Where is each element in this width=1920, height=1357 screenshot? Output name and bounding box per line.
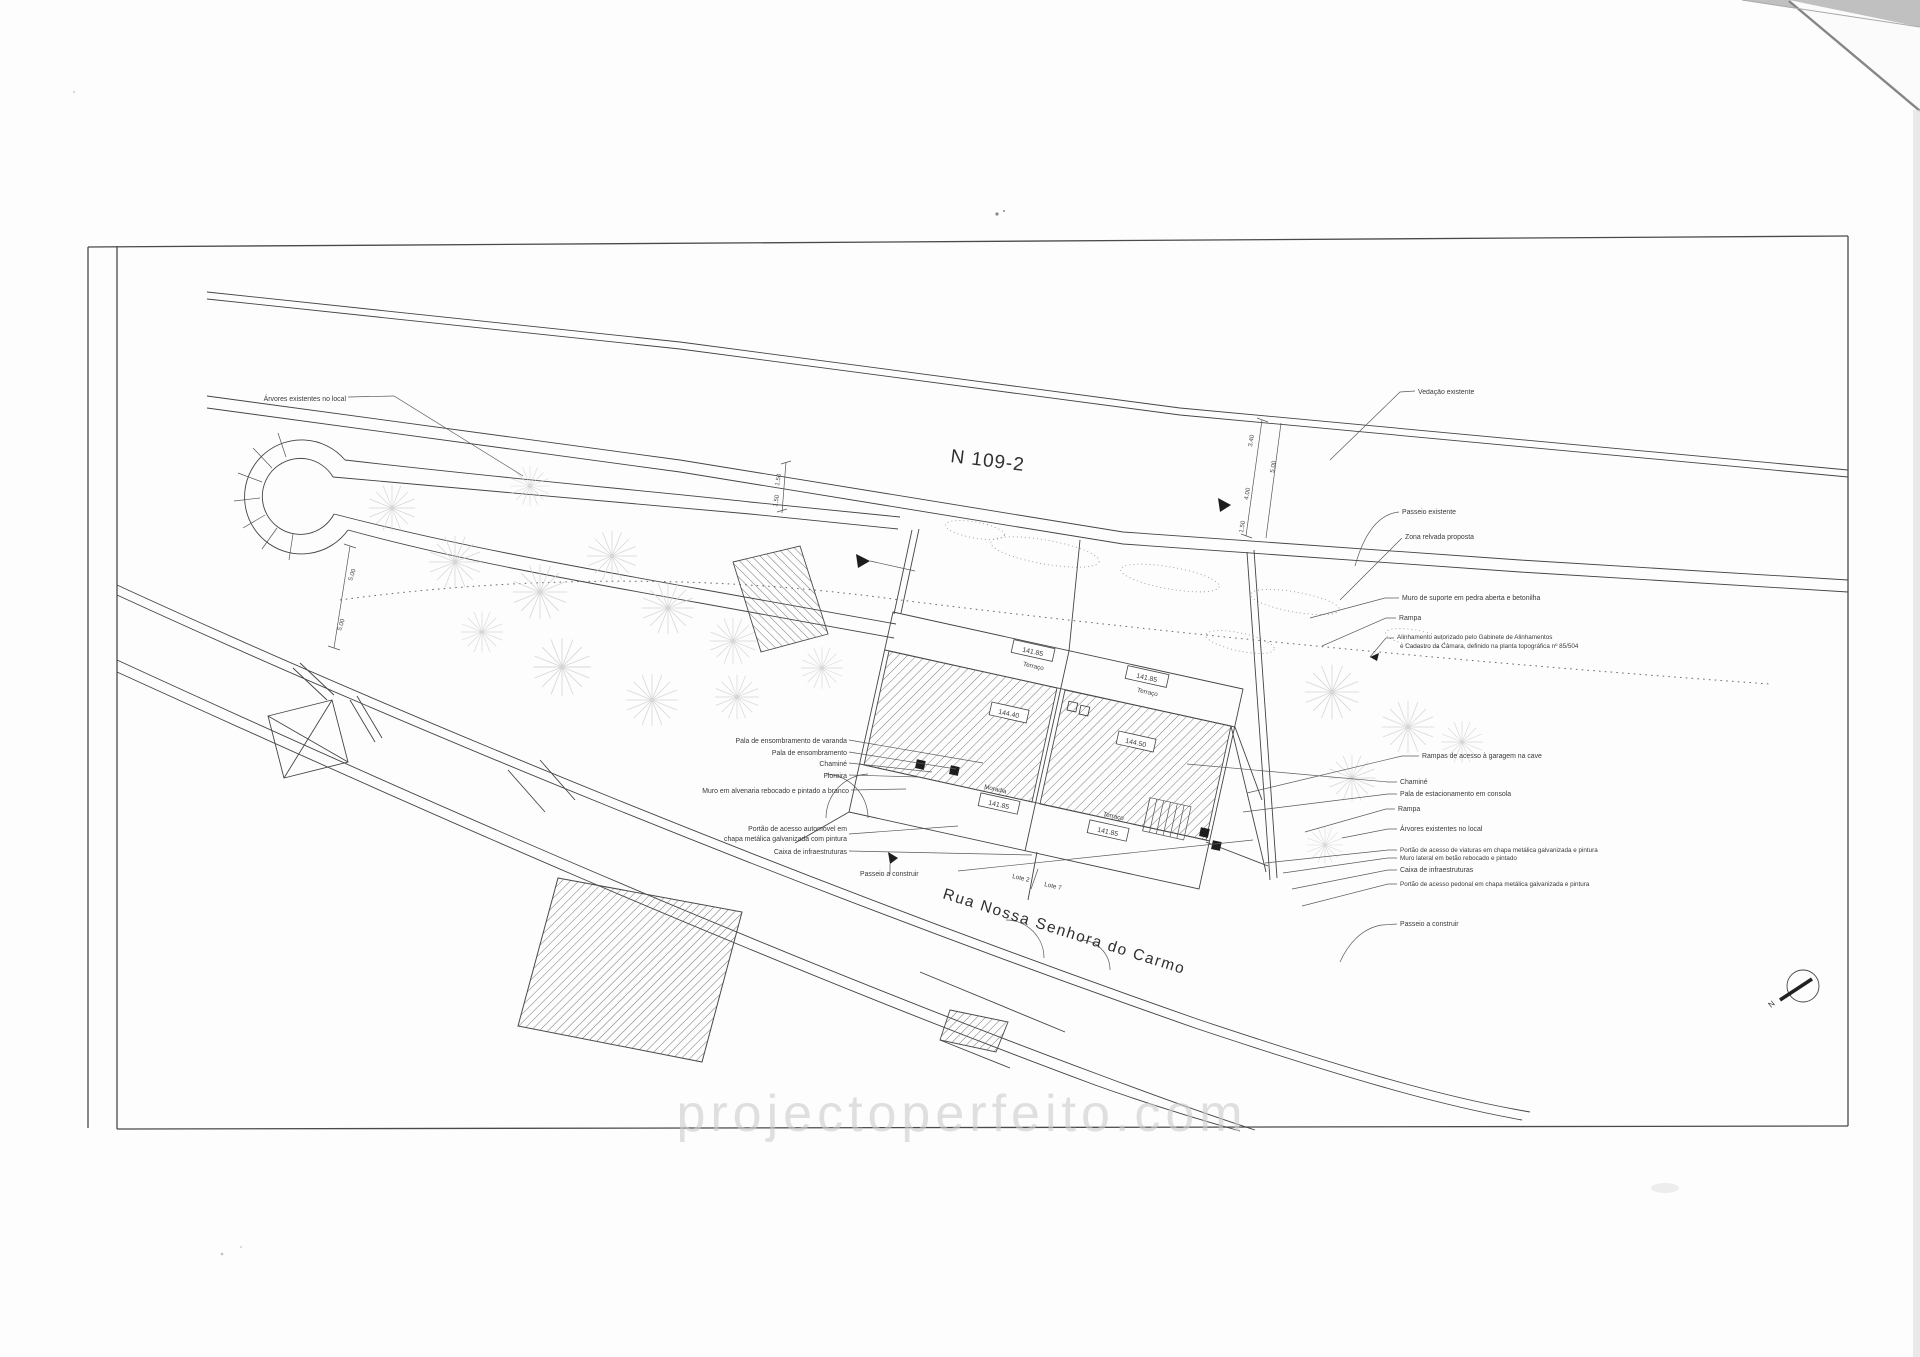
dim-value: 5.00	[347, 567, 358, 581]
crossed-structure	[268, 700, 348, 778]
annotation-label: Rampa	[1398, 806, 1420, 813]
site-plan-drawing: N 109-2	[0, 0, 1920, 1357]
north-label: N	[1767, 999, 1777, 1010]
annotations-right: Vedação existente Passeio existente Zona…	[1187, 389, 1598, 962]
annotation-label: Alinhamento autorizado pelo Gabinete de …	[1397, 634, 1552, 641]
dotted-boundary	[340, 581, 1770, 684]
watermark-text: projectoperfeito.com	[676, 1085, 1247, 1143]
annotation-label: Floreira	[824, 773, 848, 780]
annotation-label: Árvores existentes no local	[264, 394, 347, 403]
annotation-label: Pala de ensombramento de varanda	[736, 738, 848, 745]
annotation-label: Muro em alvenaria rebocado e pintado a b…	[702, 788, 849, 795]
annotation-label: Passeio a construir	[1400, 921, 1459, 928]
turning-circle-ticks	[234, 433, 293, 560]
terrace-label: Terraço	[1022, 661, 1044, 672]
leader-lines-right	[1187, 391, 1419, 962]
lot-label: Lote 2	[1012, 873, 1031, 884]
side-wing-hatch	[733, 546, 828, 652]
scan-edge-shadow	[1913, 110, 1920, 1357]
dim-value: 4.00	[1243, 487, 1252, 501]
road-label: N 109-2	[949, 446, 1026, 476]
hatched-parcel-small	[940, 1010, 1008, 1052]
annotation-label: Pala de estacionamento em consola	[1400, 791, 1511, 798]
roof-hatch-left	[864, 651, 1057, 802]
annotation-label: Rampa	[1399, 615, 1421, 622]
dim-value: 5.00	[336, 617, 347, 631]
north-arrow-icon: N	[1767, 970, 1819, 1010]
annotation-label: Portão de acesso pedonal em chapa metáli…	[1400, 881, 1590, 888]
fold-corner	[1742, 0, 1920, 113]
annotation-label: Zona relvada proposta	[1405, 534, 1474, 541]
annotation-label: Portão de acesso automóvel em	[748, 826, 847, 833]
annotation-label: Muro lateral em betão rebocado e pintado	[1400, 855, 1517, 862]
annotation-label: Passeio a construir	[860, 871, 919, 878]
roof-hatch-right	[1040, 690, 1231, 840]
lot-label: Lote 7	[1044, 881, 1063, 892]
annotation-label: Árvores existentes no local	[1400, 824, 1483, 833]
annotation-label: Pala de ensombramento	[772, 750, 847, 757]
annotation-label: e Cadastro da Câmara, definido na planta…	[1400, 643, 1579, 650]
dim-value: 5.00	[1269, 460, 1278, 474]
annotation-label: Rampas de acesso à garagem na cave	[1422, 753, 1542, 760]
lot-labels: Lote 2 Lote 7	[1012, 869, 1063, 892]
annotation-label: Caixa de infraestruturas	[1400, 867, 1474, 874]
annotation-label: Chaminé	[1400, 779, 1428, 786]
scanned-site-plan-page: N 109-2	[0, 0, 1920, 1357]
annotation-label: Muro de suporte em pedra aberta e betoni…	[1402, 595, 1540, 602]
dim-value: 1.50	[774, 473, 783, 487]
annotation-label: Vedação existente	[1418, 389, 1474, 396]
annotation-label: Chaminé	[819, 761, 847, 768]
annotation-label: Passeio existente	[1402, 509, 1456, 516]
hatched-parcel	[518, 878, 742, 1062]
road-n109	[207, 292, 1848, 592]
annotation-label: Caixa de infraestruturas	[774, 849, 848, 856]
terrace-label: Terraço	[1136, 687, 1158, 698]
dim-value: 1.50	[1238, 520, 1247, 534]
dim-value: 3.40	[1247, 434, 1256, 448]
annotation-label: chapa metálica galvanizada com pintura	[724, 836, 847, 843]
annotation-label: Portão de acesso de viaturas em chapa me…	[1400, 847, 1598, 854]
shrub-texture	[944, 517, 1446, 658]
street-name: Rua Nossa Senhora do Carmo	[941, 886, 1188, 978]
